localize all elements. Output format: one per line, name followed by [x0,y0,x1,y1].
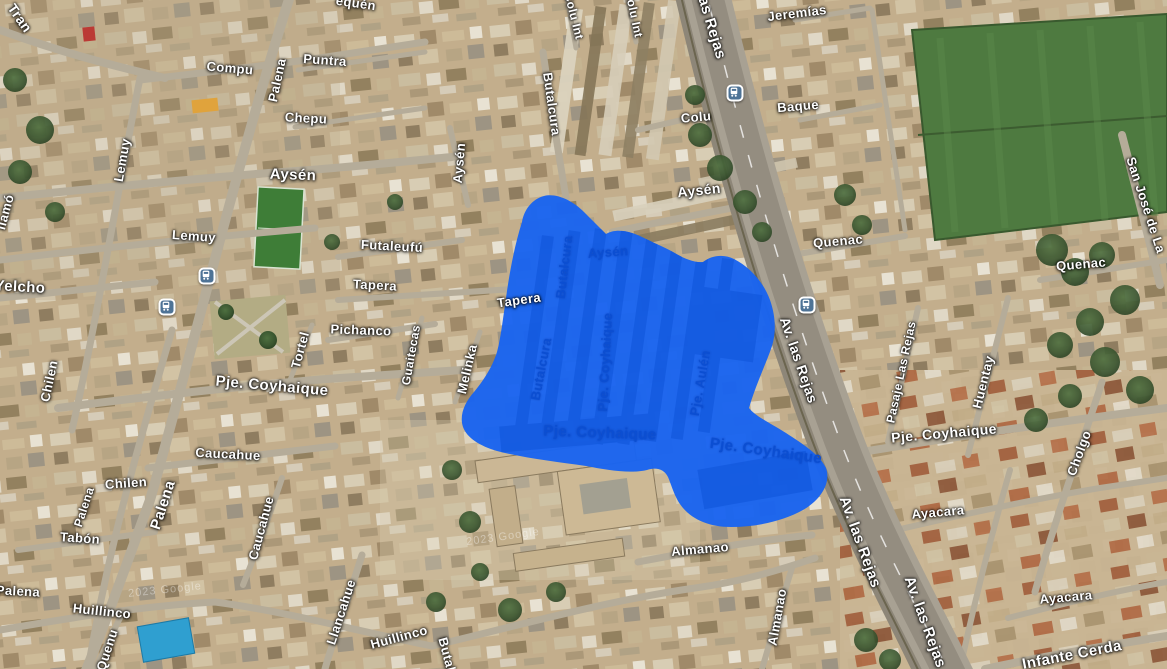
bus-glyph [729,87,740,98]
soccer-field [912,14,1167,240]
map-viewport[interactable]: TranequénCompuPalenaPuntraChepuAysénLemu… [0,0,1167,669]
park [210,295,291,359]
bus-glyph [801,299,812,310]
satellite-basemap [0,0,1167,669]
transit-station-icon[interactable] [199,268,216,285]
bus-glyph [161,301,172,312]
transit-station-icon[interactable] [799,297,816,314]
transit-station-icon[interactable] [727,85,744,102]
transit-station-icon[interactable] [159,299,176,316]
bus-glyph [201,270,212,281]
